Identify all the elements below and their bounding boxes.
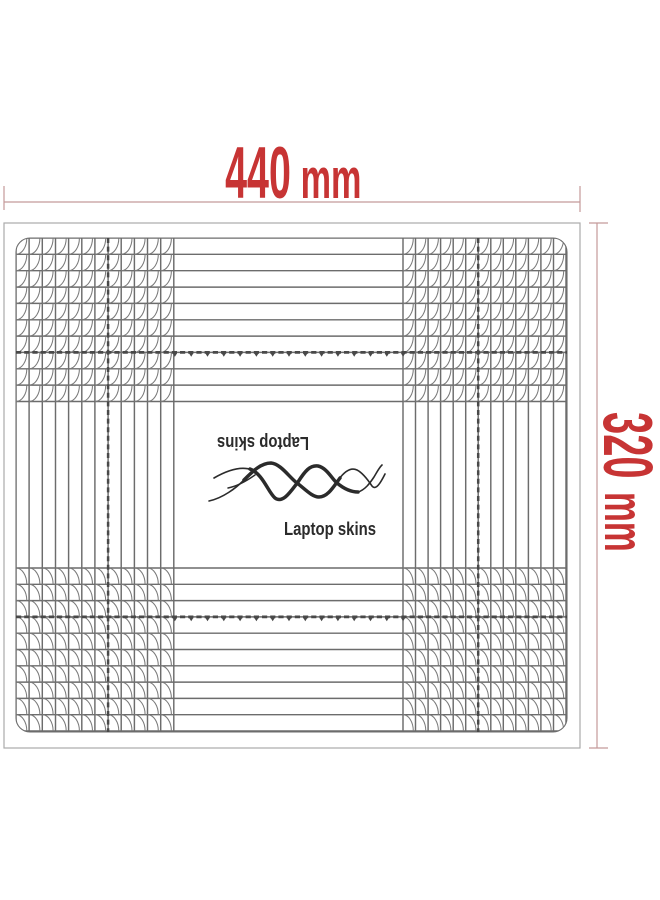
svg-text:Laptop skins: Laptop skins xyxy=(217,433,309,453)
svg-text:mm: mm xyxy=(593,492,656,552)
svg-text:320: 320 xyxy=(588,412,660,479)
svg-text:mm: mm xyxy=(301,146,362,210)
svg-text:Laptop skins: Laptop skins xyxy=(284,519,376,539)
